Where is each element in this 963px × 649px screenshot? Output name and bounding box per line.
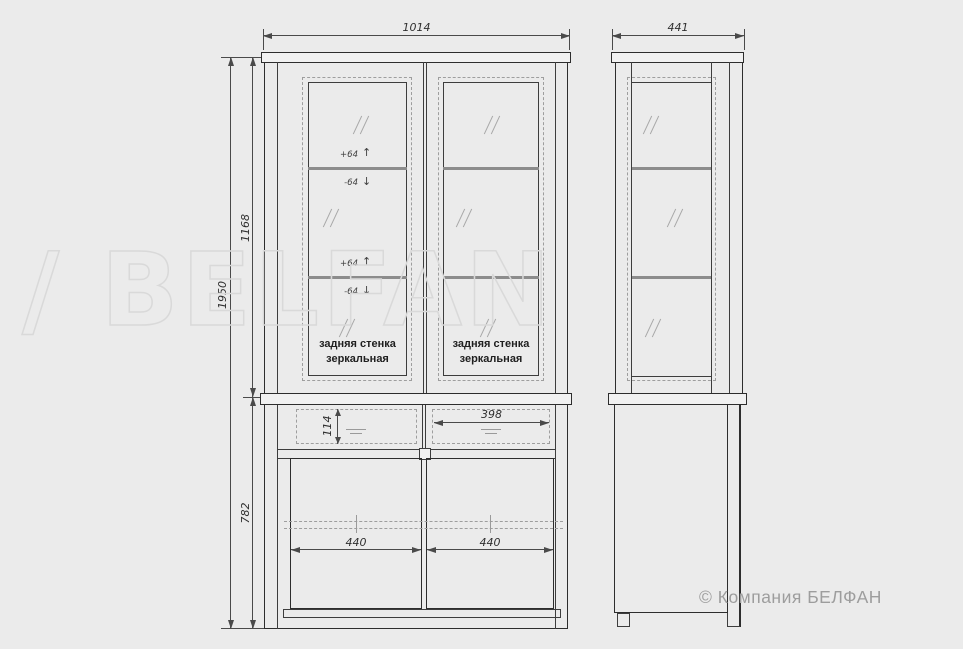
belfan-watermark: / BELFAN: [22, 231, 553, 350]
side-glass-bottom-line: [631, 376, 711, 377]
drawer-gap-line: [422, 405, 423, 450]
copyright-text: © Компания БЕЛФАН: [699, 587, 882, 608]
dim-line-door-width-right: [427, 549, 553, 550]
shelf-line: [443, 167, 539, 170]
glass-icon: [320, 208, 342, 228]
extension-line: [744, 29, 745, 50]
side-back-panel-bottom: [727, 626, 740, 627]
dim-label-lower-height: 782: [238, 488, 252, 538]
glass-icon: [640, 115, 662, 135]
lower-door-right: [426, 458, 554, 609]
side-glass-top-line: [631, 82, 711, 83]
drawer-handle-icon: [485, 433, 497, 434]
front-mid-cornice: [260, 393, 572, 405]
front-side-panel-line-right: [555, 62, 556, 629]
drawer-gap-line: [425, 405, 426, 450]
front-bottom-rail: [283, 609, 561, 618]
dim-label-drawer-width: 398: [434, 408, 549, 421]
arrow-up-icon: ↑: [362, 147, 371, 158]
shelf-adjust-down-label: -64: [330, 178, 358, 188]
glass-icon: [481, 115, 503, 135]
drawer-handle-icon: [481, 429, 501, 430]
drawer-outline-left: [296, 409, 417, 444]
dim-label-drawer-height: 114: [320, 401, 334, 451]
dim-line-lower-height: [252, 397, 253, 629]
dim-line-drawer-height: [337, 409, 338, 444]
technical-drawing-canvas: / BELFAN 1014 441 1950 1168 782 +64 ↑ -6…: [0, 0, 963, 649]
dim-line-door-width-left: [291, 549, 421, 550]
dim-label-cabinet-width: 1014: [263, 21, 570, 34]
glass-icon: [350, 115, 372, 135]
shelf-line: [632, 167, 711, 170]
side-lower-carcass: [614, 404, 728, 613]
dim-line-cabinet-width: [263, 35, 570, 36]
side-front-foot: [617, 613, 630, 627]
mirror-back-note-line2: зеркальная: [460, 353, 523, 365]
hidden-shelf-dashed-line: [284, 528, 563, 529]
dim-label-door-width-right: 440: [427, 536, 553, 549]
side-back-frame-line: [729, 62, 730, 393]
glass-icon: [642, 318, 664, 338]
dim-label-cabinet-depth: 441: [612, 21, 744, 34]
drawer-handle-icon: [346, 429, 366, 430]
side-back-panel-line: [727, 613, 728, 627]
drawer-handle-icon: [350, 433, 362, 434]
shelf-line: [632, 276, 711, 279]
lower-door-left: [290, 458, 422, 609]
shelf-line: [308, 167, 407, 170]
glass-icon: [453, 208, 475, 228]
mirror-back-note-line2: зеркальная: [326, 353, 389, 365]
glass-icon: [664, 208, 686, 228]
shelf-pin-mark: [356, 515, 357, 533]
shelf-adjust-up-label: +64: [330, 150, 358, 160]
dim-line-drawer-width: [434, 422, 549, 423]
shelf-pin-mark: [490, 515, 491, 533]
arrow-down-icon: ↓: [362, 176, 371, 187]
dim-line-cabinet-depth: [612, 35, 744, 36]
hidden-shelf-dashed-line: [284, 521, 563, 522]
dim-label-door-width-left: 440: [291, 536, 421, 549]
